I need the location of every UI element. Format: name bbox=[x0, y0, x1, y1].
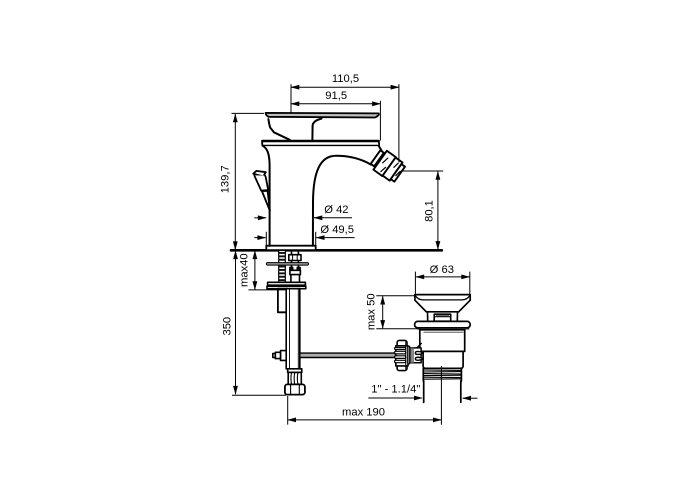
svg-text:80,1: 80,1 bbox=[423, 200, 435, 222]
svg-text:max40: max40 bbox=[239, 253, 251, 287]
svg-text:350: 350 bbox=[222, 317, 234, 336]
svg-text:Ø 42: Ø 42 bbox=[324, 204, 348, 216]
svg-text:max 50: max 50 bbox=[365, 293, 377, 330]
svg-text:1" - 1.1/4": 1" - 1.1/4" bbox=[371, 384, 420, 396]
svg-text:Ø 63: Ø 63 bbox=[430, 264, 454, 276]
svg-text:110,5: 110,5 bbox=[332, 73, 359, 85]
svg-text:Ø 49,5: Ø 49,5 bbox=[320, 224, 354, 236]
svg-text:91,5: 91,5 bbox=[325, 90, 347, 102]
svg-text:139,7: 139,7 bbox=[220, 165, 232, 193]
svg-text:max 190: max 190 bbox=[342, 407, 385, 419]
